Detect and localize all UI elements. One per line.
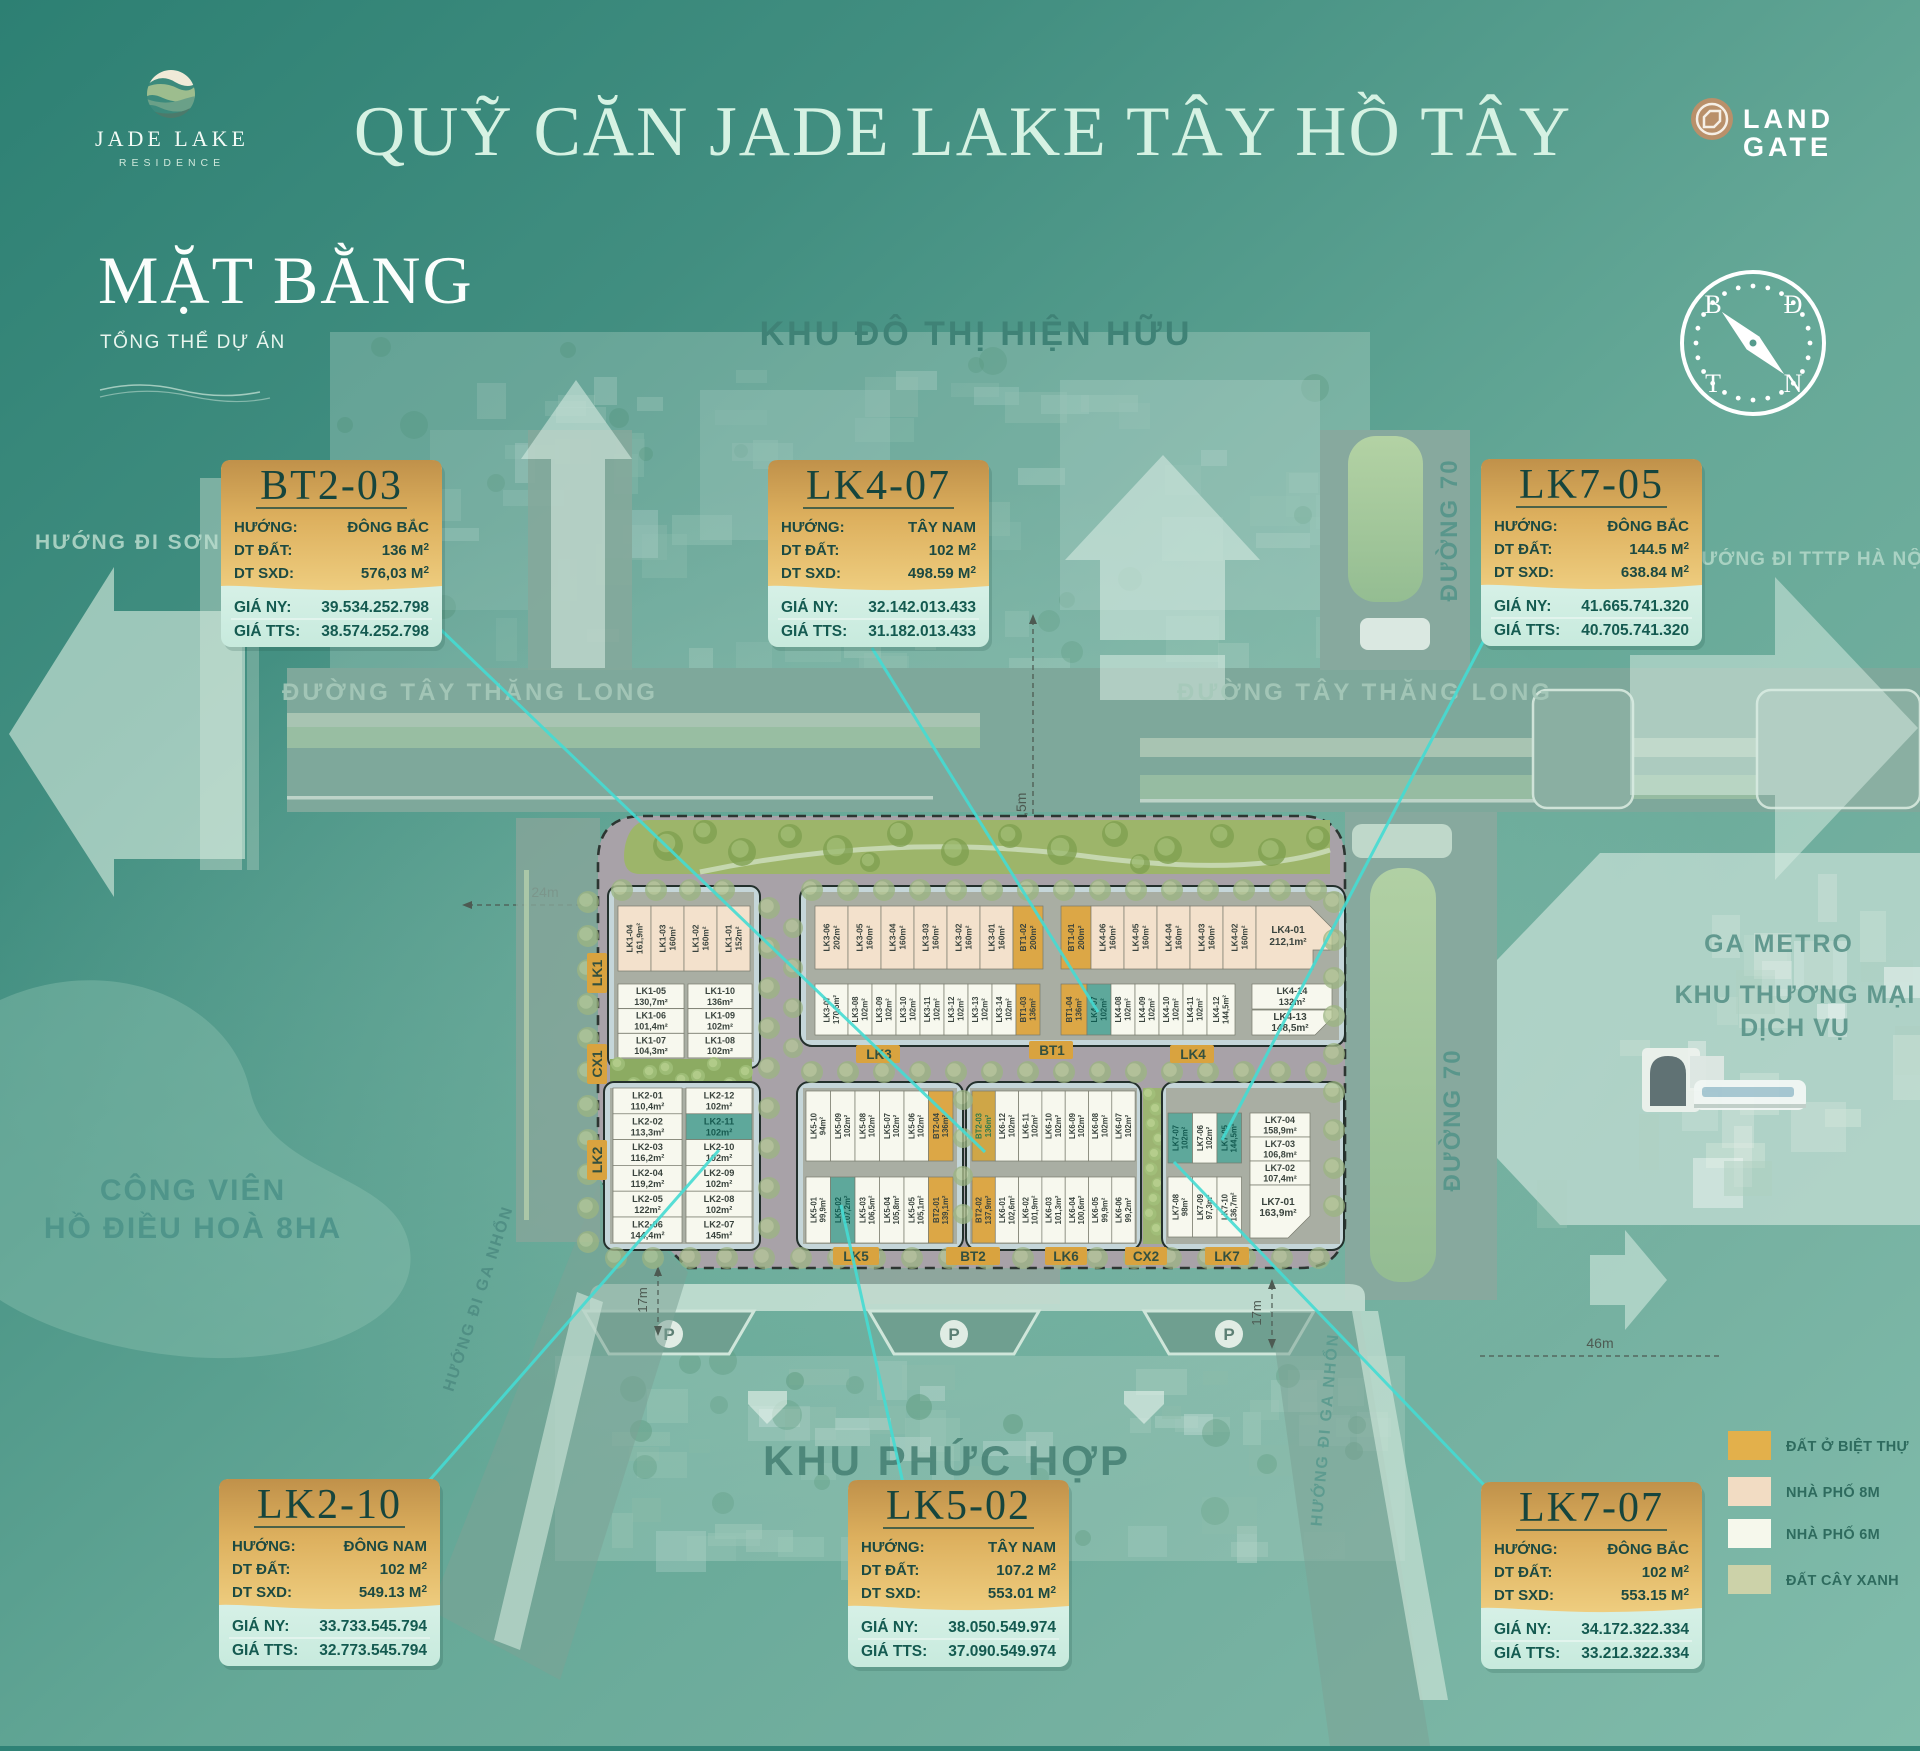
svg-text:HỒ ĐIỀU HOÀ 8HA: HỒ ĐIỀU HOÀ 8HA xyxy=(44,1211,342,1245)
svg-text:LK6-02101,9m²: LK6-02101,9m² xyxy=(1021,1195,1039,1224)
svg-text:BT2-03136m²: BT2-03136m² xyxy=(975,1112,993,1139)
svg-text:LK6-01102,6m²: LK6-01102,6m² xyxy=(998,1195,1016,1224)
svg-text:ĐÔNG NAM: ĐÔNG NAM xyxy=(344,1537,427,1555)
svg-text:LK4-12144,5m²: LK4-12144,5m² xyxy=(1212,995,1230,1024)
svg-text:LK7-02107,4m²: LK7-02107,4m² xyxy=(1263,1163,1297,1184)
svg-text:37.090.549.974: 37.090.549.974 xyxy=(948,1643,1056,1660)
svg-text:GIÁ TTS:: GIÁ TTS: xyxy=(861,1643,927,1660)
svg-text:136 M2: 136 M2 xyxy=(382,542,430,559)
svg-text:LK3-11102m²: LK3-11102m² xyxy=(923,996,941,1022)
svg-text:LK6-12102m²: LK6-12102m² xyxy=(998,1112,1016,1139)
svg-text:HƯỚNG ĐI TTTP HÀ NỘI: HƯỚNG ĐI TTTP HÀ NỘI xyxy=(1687,548,1920,570)
svg-text:HƯỚNG:: HƯỚNG: xyxy=(232,1537,296,1555)
svg-text:LK5: LK5 xyxy=(843,1249,869,1264)
svg-text:38.050.549.974: 38.050.549.974 xyxy=(948,1619,1056,1636)
svg-text:553.01 M2: 553.01 M2 xyxy=(988,1585,1057,1602)
svg-text:LK3-12102m²: LK3-12102m² xyxy=(947,996,965,1023)
svg-text:JADE LAKE: JADE LAKE xyxy=(95,126,249,151)
svg-text:LK5-09102m²: LK5-09102m² xyxy=(834,1112,852,1139)
svg-text:P: P xyxy=(1223,1325,1234,1344)
svg-text:38.574.252.798: 38.574.252.798 xyxy=(321,623,429,640)
svg-text:TÂY NAM: TÂY NAM xyxy=(988,1538,1056,1556)
svg-text:LK1-08102m²: LK1-08102m² xyxy=(705,1035,735,1056)
svg-text:LK2-12102m²: LK2-12102m² xyxy=(704,1091,735,1112)
svg-text:102 M2: 102 M2 xyxy=(380,1561,428,1578)
svg-text:LK1-02160m²: LK1-02160m² xyxy=(690,924,710,952)
svg-text:N: N xyxy=(1784,369,1803,398)
svg-text:LK7-06102m²: LK7-06102m² xyxy=(1196,1124,1214,1151)
svg-text:102 M2: 102 M2 xyxy=(929,542,977,559)
svg-text:GIÁ NY:: GIÁ NY: xyxy=(861,1619,918,1636)
svg-text:DT ĐẤT:: DT ĐẤT: xyxy=(1494,1564,1552,1581)
svg-text:LK5-05105,1m²: LK5-05105,1m² xyxy=(907,1195,925,1224)
svg-text:BT1-02200m²: BT1-02200m² xyxy=(1018,923,1038,951)
svg-text:GA METRO: GA METRO xyxy=(1704,930,1854,958)
svg-text:41.665.741.320: 41.665.741.320 xyxy=(1581,598,1689,615)
svg-text:LK3-04160m²: LK3-04160m² xyxy=(887,923,907,951)
svg-text:LK6-0599,9m²: LK6-0599,9m² xyxy=(1091,1196,1109,1223)
svg-text:LK3-03160m²: LK3-03160m² xyxy=(920,923,940,951)
svg-text:BT2: BT2 xyxy=(960,1249,986,1264)
svg-text:33.212.322.334: 33.212.322.334 xyxy=(1581,1645,1689,1662)
svg-text:LK1-03160m²: LK1-03160m² xyxy=(657,924,677,952)
svg-text:LK2-07145m²: LK2-07145m² xyxy=(704,1220,735,1241)
svg-text:LK1: LK1 xyxy=(589,960,605,987)
svg-text:LK4-04160m²: LK4-04160m² xyxy=(1163,923,1183,951)
svg-text:BT2-01139,1m²: BT2-01139,1m² xyxy=(932,1195,950,1224)
svg-text:ĐƯỜNG TÂY THĂNG LONG: ĐƯỜNG TÂY THĂNG LONG xyxy=(282,678,658,706)
svg-text:498.59 M2: 498.59 M2 xyxy=(908,565,977,582)
svg-text:HƯỚNG:: HƯỚNG: xyxy=(861,1538,925,1556)
svg-text:LK2-10: LK2-10 xyxy=(257,1482,402,1528)
svg-text:LK7-03106,8m²: LK7-03106,8m² xyxy=(1263,1139,1297,1160)
svg-text:GIÁ NY:: GIÁ NY: xyxy=(232,1618,289,1635)
svg-text:LK2-01110,4m²: LK2-01110,4m² xyxy=(631,1091,665,1112)
svg-text:LK3-01160m²: LK3-01160m² xyxy=(986,923,1006,951)
svg-text:ĐÔNG BẮC: ĐÔNG BẮC xyxy=(1607,517,1689,535)
svg-text:DỊCH VỤ: DỊCH VỤ xyxy=(1740,1014,1850,1042)
svg-text:DT SXD:: DT SXD: xyxy=(781,565,841,582)
svg-text:LK7-01163,9m²: LK7-01163,9m² xyxy=(1259,1197,1297,1219)
svg-text:T: T xyxy=(1705,369,1721,398)
svg-text:LK2-05122m²: LK2-05122m² xyxy=(632,1194,663,1215)
svg-text:LK1-06101,4m²: LK1-06101,4m² xyxy=(634,1011,668,1032)
svg-text:DT ĐẤT:: DT ĐẤT: xyxy=(1494,541,1552,558)
svg-text:QUỸ CĂN JADE LAKE TÂY HỒ TÂY: QUỸ CĂN JADE LAKE TÂY HỒ TÂY xyxy=(354,91,1572,171)
svg-text:LK2-09102m²: LK2-09102m² xyxy=(704,1168,735,1189)
svg-text:DT SXD:: DT SXD: xyxy=(234,565,294,582)
svg-text:LK3-09102m²: LK3-09102m² xyxy=(875,996,893,1023)
svg-text:LK4-08102m²: LK4-08102m² xyxy=(1114,996,1132,1023)
svg-text:102 M2: 102 M2 xyxy=(1642,1564,1690,1581)
svg-text:144.5 M2: 144.5 M2 xyxy=(1629,541,1689,558)
svg-text:KHU THƯƠNG MẠI: KHU THƯƠNG MẠI xyxy=(1675,981,1916,1009)
svg-text:KHU PHỨC HỢP: KHU PHỨC HỢP xyxy=(763,1436,1131,1484)
svg-text:576,03 M2: 576,03 M2 xyxy=(361,565,430,582)
svg-text:LK7-05: LK7-05 xyxy=(1519,462,1664,508)
svg-text:LK7-07: LK7-07 xyxy=(1519,1485,1664,1531)
svg-text:LK3-10102m²: LK3-10102m² xyxy=(899,996,917,1023)
svg-text:HƯỚNG:: HƯỚNG: xyxy=(234,518,298,536)
svg-text:GIÁ NY:: GIÁ NY: xyxy=(234,599,291,616)
svg-text:LK7-10136,7m²: LK7-10136,7m² xyxy=(1220,1192,1238,1221)
svg-text:LK2-08102m²: LK2-08102m² xyxy=(704,1194,735,1215)
svg-text:LK1-09102m²: LK1-09102m² xyxy=(705,1011,735,1032)
svg-text:LAND: LAND xyxy=(1743,104,1834,134)
svg-text:CÔNG VIÊN: CÔNG VIÊN xyxy=(100,1173,286,1207)
svg-text:LK5-08102m²: LK5-08102m² xyxy=(858,1112,876,1139)
svg-text:HƯỚNG:: HƯỚNG: xyxy=(1494,517,1558,535)
svg-text:CX2: CX2 xyxy=(1133,1249,1159,1264)
svg-text:TỔNG THỂ DỰ ÁN: TỔNG THỂ DỰ ÁN xyxy=(100,331,286,353)
svg-text:LK5-03106,5m²: LK5-03106,5m² xyxy=(858,1195,876,1224)
svg-text:BT1: BT1 xyxy=(1039,1043,1065,1058)
svg-text:LK4-01212,1m²: LK4-01212,1m² xyxy=(1269,925,1307,948)
svg-text:ĐƯỜNG 70: ĐƯỜNG 70 xyxy=(1438,1048,1466,1191)
svg-text:GIÁ TTS:: GIÁ TTS: xyxy=(232,1642,298,1659)
svg-text:LK1-05130,7m²: LK1-05130,7m² xyxy=(634,986,668,1007)
svg-text:LK4-10102m²: LK4-10102m² xyxy=(1162,996,1180,1023)
svg-text:DT ĐẤT:: DT ĐẤT: xyxy=(232,1561,290,1578)
svg-text:B: B xyxy=(1704,290,1721,319)
svg-text:LK6-0699,2m²: LK6-0699,2m² xyxy=(1115,1196,1133,1223)
svg-text:KHU ĐÔ THỊ HIỆN HỮU: KHU ĐÔ THỊ HIỆN HỮU xyxy=(760,314,1193,353)
svg-text:LK4-02160m²: LK4-02160m² xyxy=(1229,923,1249,951)
svg-text:GIÁ TTS:: GIÁ TTS: xyxy=(1494,1645,1560,1662)
svg-text:NHÀ PHỐ 8M: NHÀ PHỐ 8M xyxy=(1786,1483,1880,1501)
svg-text:LK3-13102m²: LK3-13102m² xyxy=(971,996,989,1023)
svg-text:LK2-04119,2m²: LK2-04119,2m² xyxy=(631,1168,665,1189)
svg-text:LK1-04161,9m²: LK1-04161,9m² xyxy=(624,923,644,954)
svg-text:638.84 M2: 638.84 M2 xyxy=(1621,564,1690,581)
svg-text:LK3-02160m²: LK3-02160m² xyxy=(953,923,973,951)
svg-text:LK5-02: LK5-02 xyxy=(886,1483,1031,1529)
svg-text:GIÁ NY:: GIÁ NY: xyxy=(1494,598,1551,615)
svg-text:LK2-02113,3m²: LK2-02113,3m² xyxy=(631,1116,665,1137)
svg-text:17m: 17m xyxy=(635,1287,650,1312)
svg-text:LK5-06102m²: LK5-06102m² xyxy=(907,1112,925,1139)
svg-text:LK4-07: LK4-07 xyxy=(806,463,951,509)
svg-text:ĐÔNG BẮC: ĐÔNG BẮC xyxy=(1607,1540,1689,1558)
svg-text:46m: 46m xyxy=(1586,1335,1613,1351)
svg-text:BT1-01200m²: BT1-01200m² xyxy=(1066,923,1086,951)
svg-text:LK7: LK7 xyxy=(1214,1249,1240,1264)
svg-text:Đ: Đ xyxy=(1784,290,1803,319)
svg-text:39.534.252.798: 39.534.252.798 xyxy=(321,599,429,616)
svg-text:LK1-01152m²: LK1-01152m² xyxy=(723,924,743,952)
svg-text:32.142.013.433: 32.142.013.433 xyxy=(868,599,976,616)
svg-text:LK4-09102m²: LK4-09102m² xyxy=(1138,996,1156,1023)
svg-text:BT1-03136m²: BT1-03136m² xyxy=(1019,996,1037,1023)
svg-text:ĐƯỜNG TÂY THĂNG LONG: ĐƯỜNG TÂY THĂNG LONG xyxy=(1177,678,1553,706)
svg-text:17m: 17m xyxy=(1249,1300,1264,1325)
svg-text:LK6-09102m²: LK6-09102m² xyxy=(1068,1112,1086,1139)
svg-text:GIÁ NY:: GIÁ NY: xyxy=(781,599,838,616)
svg-text:LK2-11102m²: LK2-11102m² xyxy=(704,1116,734,1137)
svg-text:RESIDENCE: RESIDENCE xyxy=(119,157,225,169)
svg-text:BT1-04136m²: BT1-04136m² xyxy=(1065,996,1083,1023)
svg-text:LK6: LK6 xyxy=(1053,1249,1079,1264)
svg-text:31.182.013.433: 31.182.013.433 xyxy=(868,623,976,640)
svg-text:GIÁ TTS:: GIÁ TTS: xyxy=(234,623,300,640)
svg-text:40.705.741.320: 40.705.741.320 xyxy=(1581,622,1689,639)
svg-text:MẶT BẰNG: MẶT BẰNG xyxy=(98,242,474,318)
svg-text:LK3-14102m²: LK3-14102m² xyxy=(995,996,1013,1023)
svg-text:BT2-03: BT2-03 xyxy=(260,463,403,509)
svg-text:LK3-06202m²: LK3-06202m² xyxy=(821,923,841,951)
svg-text:LK2-03116,2m²: LK2-03116,2m² xyxy=(631,1142,665,1163)
svg-text:LK4: LK4 xyxy=(1180,1047,1206,1062)
svg-text:33.733.545.794: 33.733.545.794 xyxy=(319,1618,427,1635)
svg-text:GIÁ TTS:: GIÁ TTS: xyxy=(781,623,847,640)
svg-text:LK4-06160m²: LK4-06160m² xyxy=(1097,923,1117,951)
svg-text:107.2 M2: 107.2 M2 xyxy=(996,1562,1056,1579)
svg-text:BT2-02137,9m²: BT2-02137,9m² xyxy=(975,1195,993,1224)
svg-text:LK4-03160m²: LK4-03160m² xyxy=(1196,923,1216,951)
svg-text:TÂY NAM: TÂY NAM xyxy=(908,518,976,536)
svg-text:DT ĐẤT:: DT ĐẤT: xyxy=(234,542,292,559)
svg-text:LK4-13148,5m²: LK4-13148,5m² xyxy=(1271,1012,1309,1034)
svg-text:DT SXD:: DT SXD: xyxy=(1494,1587,1554,1604)
svg-text:ĐÔNG BẮC: ĐÔNG BẮC xyxy=(347,518,429,536)
svg-text:HƯỚNG:: HƯỚNG: xyxy=(781,518,845,536)
svg-text:LK5-0199,9m²: LK5-0199,9m² xyxy=(809,1196,827,1223)
svg-text:P: P xyxy=(948,1325,959,1344)
svg-text:LK4-11102m²: LK4-11102m² xyxy=(1186,996,1204,1022)
svg-text:LK2: LK2 xyxy=(589,1147,605,1174)
svg-text:LK7-04158,9m²: LK7-04158,9m² xyxy=(1263,1115,1297,1136)
svg-text:34.172.322.334: 34.172.322.334 xyxy=(1581,1621,1689,1638)
svg-text:DT SXD:: DT SXD: xyxy=(861,1585,921,1602)
svg-text:LK4-05160m²: LK4-05160m² xyxy=(1130,923,1150,951)
svg-text:ĐẤT Ở BIỆT THỰ: ĐẤT Ở BIỆT THỰ xyxy=(1786,1437,1910,1455)
svg-text:LK6-07102m²: LK6-07102m² xyxy=(1115,1113,1133,1139)
svg-text:553.15 M2: 553.15 M2 xyxy=(1621,1587,1690,1604)
svg-text:DT SXD:: DT SXD: xyxy=(232,1584,292,1601)
svg-text:LK1-10136m²: LK1-10136m² xyxy=(705,986,735,1007)
svg-text:LK6-03101,3m²: LK6-03101,3m² xyxy=(1045,1195,1063,1224)
svg-text:LK7-0997,3m²: LK7-0997,3m² xyxy=(1196,1193,1214,1220)
svg-text:LK6-10102m²: LK6-10102m² xyxy=(1045,1112,1063,1139)
svg-text:DT ĐẤT:: DT ĐẤT: xyxy=(781,542,839,559)
svg-text:LK3-08102m²: LK3-08102m² xyxy=(851,996,869,1023)
svg-text:ĐẤT CÂY XANH: ĐẤT CÂY XANH xyxy=(1786,1571,1899,1589)
svg-text:NHÀ PHỐ 6M: NHÀ PHỐ 6M xyxy=(1786,1525,1880,1543)
svg-text:LK3-05160m²: LK3-05160m² xyxy=(854,923,874,951)
svg-text:549.13 M2: 549.13 M2 xyxy=(359,1584,428,1601)
svg-text:HƯỚNG:: HƯỚNG: xyxy=(1494,1540,1558,1558)
svg-text:32.773.545.794: 32.773.545.794 xyxy=(319,1642,427,1659)
svg-text:DT SXD:: DT SXD: xyxy=(1494,564,1554,581)
svg-text:LK4-07102m²: LK4-07102m² xyxy=(1090,997,1108,1023)
svg-text:GIÁ TTS:: GIÁ TTS: xyxy=(1494,622,1560,639)
svg-text:DT ĐẤT:: DT ĐẤT: xyxy=(861,1562,919,1579)
svg-text:LK5-07102m²: LK5-07102m² xyxy=(883,1113,901,1139)
svg-text:ĐƯỜNG 70: ĐƯỜNG 70 xyxy=(1435,458,1463,601)
svg-text:LK1-07104,3m²: LK1-07104,3m² xyxy=(634,1035,668,1056)
svg-text:GATE: GATE xyxy=(1743,132,1832,162)
svg-text:CX1: CX1 xyxy=(589,1050,605,1077)
svg-text:LK6-08102m²: LK6-08102m² xyxy=(1091,1112,1109,1139)
svg-text:LK5-04105,8m²: LK5-04105,8m² xyxy=(883,1195,901,1224)
svg-text:LK7-07102m²: LK7-07102m² xyxy=(1171,1125,1189,1151)
svg-text:GIÁ NY:: GIÁ NY: xyxy=(1494,1621,1551,1638)
svg-text:LK6-11102m²: LK6-11102m² xyxy=(1021,1113,1039,1139)
svg-text:LK6-04100,6m²: LK6-04100,6m² xyxy=(1068,1195,1086,1224)
